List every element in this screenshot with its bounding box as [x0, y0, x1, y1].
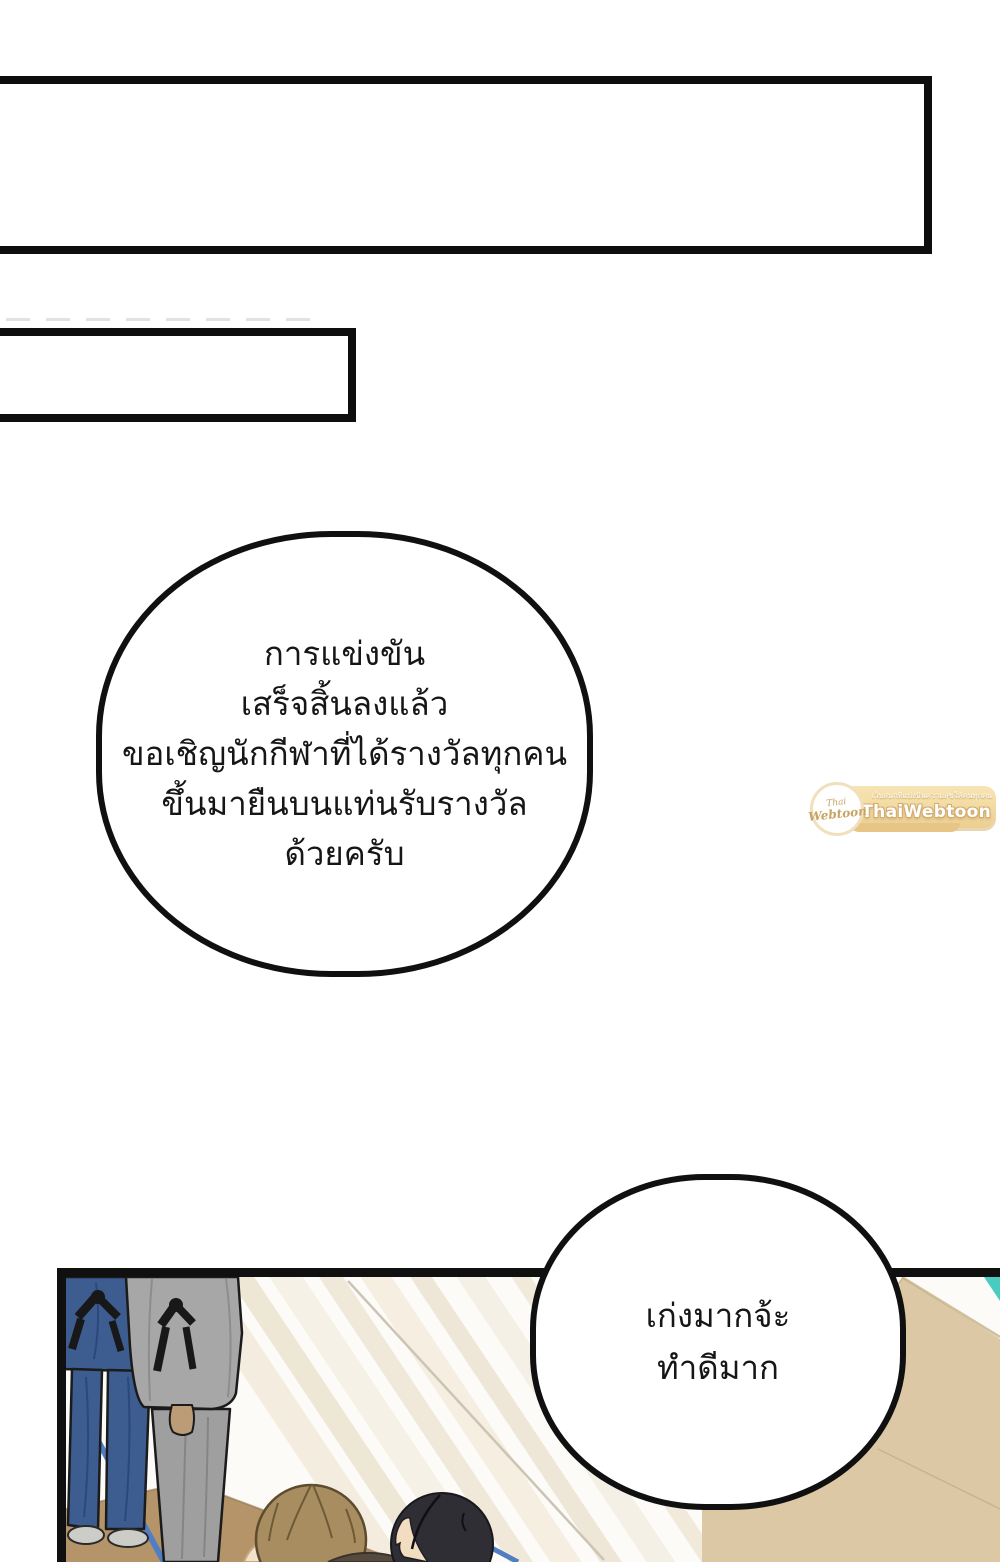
shoe [108, 1529, 148, 1547]
shoe [68, 1526, 104, 1544]
watermark-tagline: เว็บสนุกที่แบ่งปันความสุขให้คนทุกคน [870, 791, 994, 800]
caption-box-2 [0, 328, 356, 422]
announcer-line: ขึ้นมายืนบนแท่นรับรางวัล [161, 779, 527, 829]
announcer-line: การแข่งขัน [264, 629, 425, 679]
praise-line: ทำดีมาก [657, 1342, 779, 1394]
hand [170, 1405, 194, 1435]
speech-bubble-announcer: การแข่งขัน เสร็จสิ้นลงแล้ว ขอเชิญนักกีฬา… [96, 531, 593, 977]
speech-bubble-praise: เก่งมากจ้ะ ทำดีมาก [530, 1174, 906, 1510]
praise-line: เก่งมากจ้ะ [646, 1290, 791, 1342]
logo-script-bottom: Webtoon [808, 804, 868, 822]
announcer-line: เสร็จสิ้นลงแล้ว [241, 679, 449, 729]
announcer-line: ด้วยครับ [284, 829, 404, 879]
watermark-brand-text: ThaiWebtoon [861, 802, 991, 822]
thaiwebtoon-watermark: เว็บสนุกที่แบ่งปันความสุขให้คนทุกคน Thai… [810, 779, 998, 839]
dashed-line-artifact [6, 318, 326, 321]
watermark-banner-shadow [850, 823, 960, 832]
caption-box-1 [0, 76, 932, 254]
announcer-line: ขอเชิญนักกีฬาที่ได้รางวัลทุกคน [122, 729, 567, 779]
